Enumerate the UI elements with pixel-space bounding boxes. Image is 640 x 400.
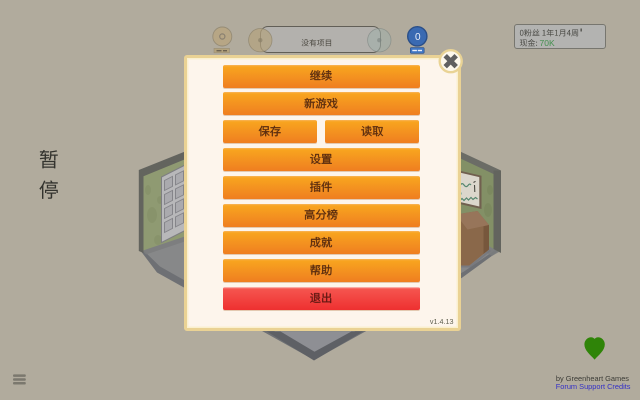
svg-text:0: 0 bbox=[415, 32, 421, 43]
